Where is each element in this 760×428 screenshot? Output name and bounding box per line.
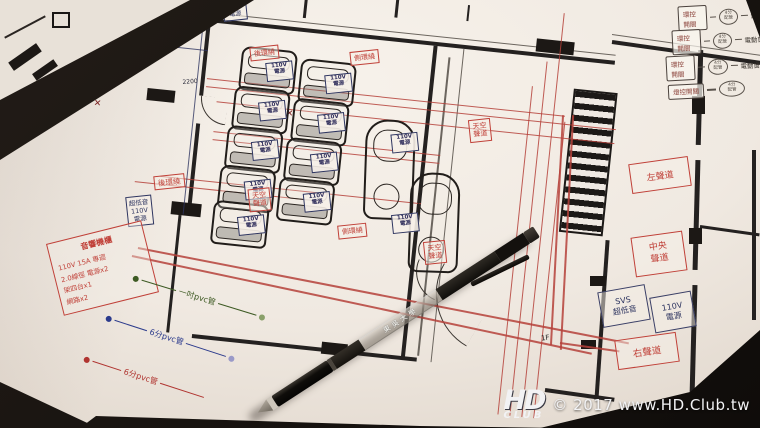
outlet-label: 110V 電源 xyxy=(317,112,346,134)
control-box: 燈控開關 xyxy=(668,83,705,100)
sheet-mark xyxy=(4,15,46,38)
svs-power-label: 110V 電源 xyxy=(649,291,697,334)
pipe-oval: 4分 配管 xyxy=(719,8,739,25)
outlet-label: 110V 電源 xyxy=(265,60,294,82)
connector-line xyxy=(710,16,716,18)
hdclub-logo: HD CLUB xyxy=(503,390,544,420)
speaker-label-ceiling-3: 天空 聲道 xyxy=(468,118,492,143)
flow-row-3: 環控開關 4分 配管 電動窗 xyxy=(665,52,760,82)
door-arc xyxy=(198,96,228,126)
connector-line xyxy=(741,15,747,17)
callout-dot xyxy=(105,315,113,323)
wall-block xyxy=(590,276,606,286)
pipe-oval: 4分 配管 xyxy=(713,32,733,49)
outlet-label: 110V 電源 xyxy=(324,73,353,95)
wall-far-right xyxy=(752,150,756,320)
callout-dot xyxy=(83,356,91,364)
sheet-mark xyxy=(8,43,42,71)
watermark: HD CLUB © 2017 www.HD.Club.tw xyxy=(503,390,750,420)
flow-row-2: 環控開關 4分 配管 電動窗 xyxy=(671,26,760,56)
flow-target-label: 電動窗 xyxy=(740,59,760,70)
outlet-label: 110V 電源 xyxy=(390,132,419,154)
pipe-oval: 4分 配管 xyxy=(708,58,729,75)
control-box: 環控開關 xyxy=(665,55,696,81)
dimension-label: 2200 xyxy=(182,78,198,86)
outlet-label: 110V 電源 xyxy=(258,100,287,122)
wire-red xyxy=(521,13,565,417)
outlet-label: 110V 電源 xyxy=(237,214,266,236)
connector-line xyxy=(698,66,705,68)
connector-line xyxy=(731,65,738,67)
callout-dot xyxy=(132,275,139,282)
photo-scene: ✕ ✕ 110V 電源 110V 電源 110V 電源 110V 電源 110V… xyxy=(0,0,760,428)
control-box: 環控開關 xyxy=(677,5,707,31)
speaker-label-ceiling-2: 天空 聲道 xyxy=(423,240,447,265)
connector-line xyxy=(704,40,710,42)
speaker-label-side-surround-1: 側環繞 xyxy=(349,49,379,66)
wall-block xyxy=(692,96,705,114)
speaker-label-ceiling-1: 天空 聲道 xyxy=(247,187,271,212)
wall-tick xyxy=(303,0,309,18)
speaker-label-side-surround-2: 側環繞 xyxy=(337,223,367,240)
outlet-label: 110V 電源 xyxy=(310,152,339,174)
pipe-oval: 4分 配管 xyxy=(719,80,746,97)
wall-block xyxy=(689,228,702,244)
connector-line xyxy=(707,89,716,91)
connector-line xyxy=(735,39,741,41)
flow-target-label: 電動窗 xyxy=(744,33,760,44)
logo-text-club: CLUB xyxy=(503,412,544,420)
control-box: 環控開關 xyxy=(671,29,701,55)
logo-text-hd: HD xyxy=(503,390,544,412)
sheet-mark xyxy=(52,12,70,28)
outlet-label: 110V 電源 xyxy=(251,139,280,161)
copyright-text: © 2017 www.HD.Club.tw xyxy=(552,396,750,414)
speaker-label-center-channel: 中央 聲道 xyxy=(630,231,687,278)
outlet-label: 110V 電源 xyxy=(303,191,332,213)
outlet-label: 110V 電源 xyxy=(391,212,420,234)
